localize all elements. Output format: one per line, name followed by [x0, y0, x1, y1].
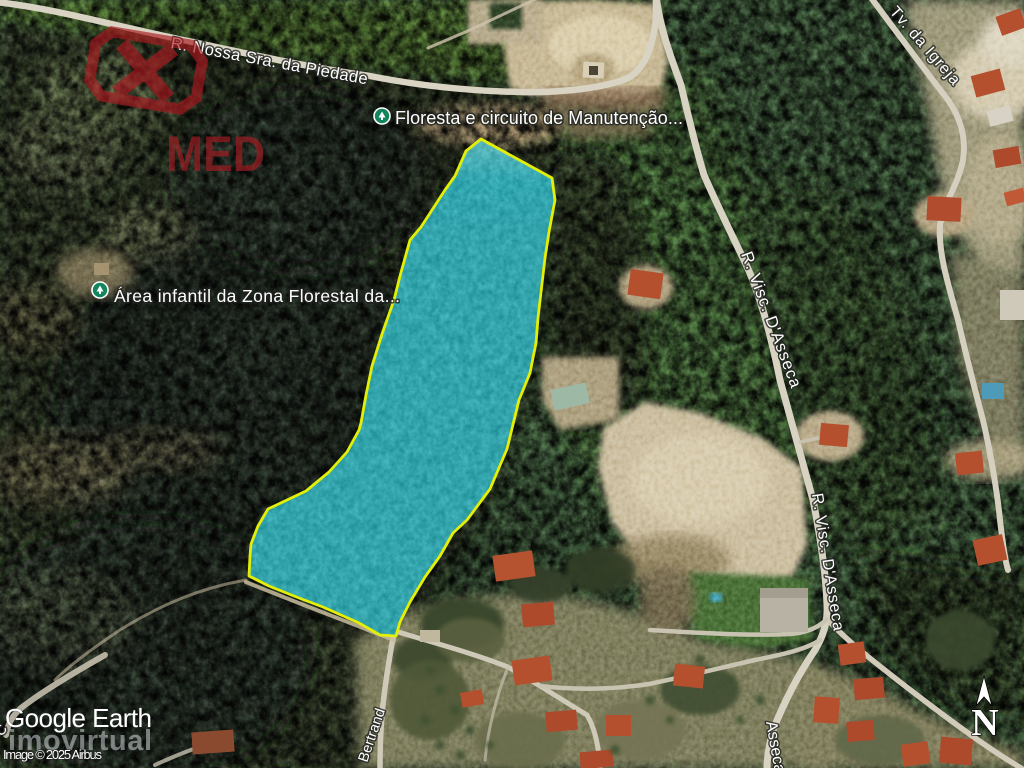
- svg-text:N: N: [971, 702, 998, 744]
- svg-text:Área infantil da Zona Floresta: Área infantil da Zona Florestal da...: [114, 286, 400, 306]
- svg-text:Floresta e circuito de Manuten: Floresta e circuito de Manutenção...: [395, 108, 683, 128]
- svg-text:Google Earth: Google Earth: [5, 703, 152, 733]
- svg-text:MED: MED: [166, 126, 265, 182]
- svg-text:Image © 2025 Airbus: Image © 2025 Airbus: [3, 747, 103, 762]
